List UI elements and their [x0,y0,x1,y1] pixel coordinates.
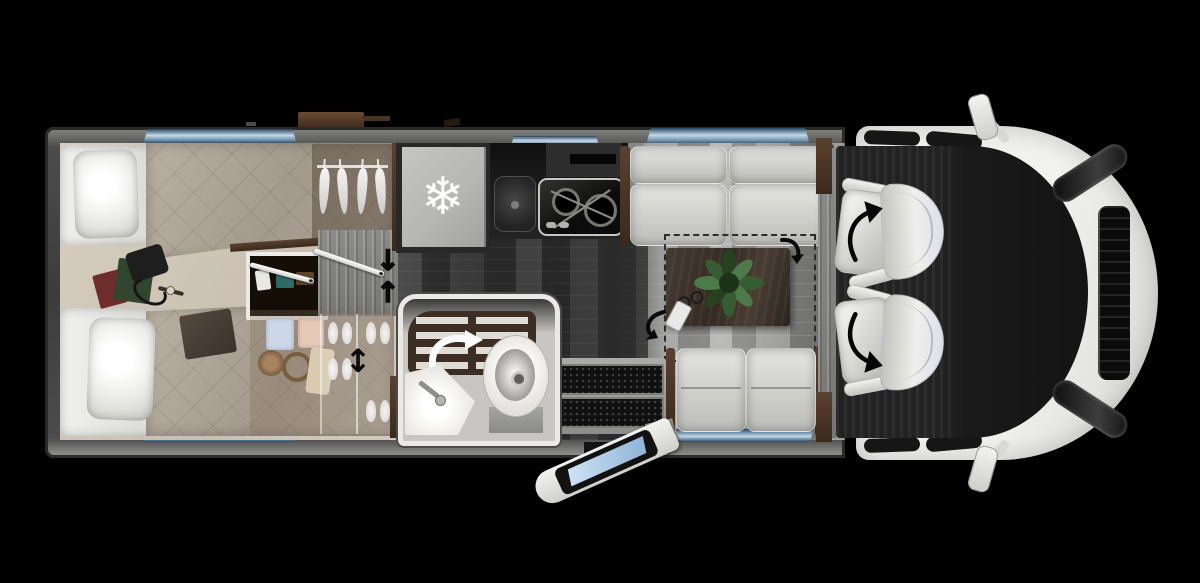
watch-face [166,286,175,295]
window-bedroom-top [143,129,297,144]
shoe [366,400,376,422]
swivel-arrow-icon [840,306,891,376]
toilet [483,335,549,417]
sofa-bottom-seat-right [746,348,816,432]
hob-knob2 [559,222,569,228]
overhead-locker-slot [570,154,616,164]
sofa-top-backrest-left [630,146,727,184]
hanger-icon [356,168,368,214]
step-tread [560,364,664,395]
bed-top-pillow [72,149,139,239]
roof-vent-small [444,118,461,127]
cab-door-window-slit [864,130,920,146]
sofa-top-trim-left [620,146,630,244]
underbed-storage-overlay: ↕ [250,310,394,436]
shower-swivel-arrow [425,329,483,371]
plant [692,248,766,318]
cab-door-window-slit3 [864,437,920,453]
front-grille [1098,206,1130,380]
table-slide-arrow-top [778,236,804,264]
shoe-rack: ↕ [320,314,394,434]
bed-bottom-pillow [86,317,156,421]
bathroom-sink [405,365,475,435]
hanger-icon [336,168,349,215]
shoe [366,322,376,344]
bathroom [398,294,560,446]
shoe [328,358,338,380]
toilet-drain [511,371,527,387]
stored-hat [258,350,284,376]
slide-door-up-icon: ↑ [376,276,400,309]
swivel-seat-driver [833,179,944,284]
cab-cabinet-bottom [816,392,832,442]
hanger-icon [374,168,387,215]
height-adjust-icon: ↕ [344,342,372,380]
hanger-icon [318,168,330,214]
swivel-arrow-icon [840,198,891,268]
stored-shirt-blue [266,318,294,350]
shoe [380,400,390,422]
swivel-seat-passenger [833,289,944,394]
shoe [380,322,390,344]
bed-throw-blanket [179,308,237,360]
snowflake-icon: ❄ [402,147,484,247]
shoe [328,322,338,344]
table-slide-arrow-bottom [642,308,668,340]
overhead-locker [546,143,622,177]
hob-knob [546,222,556,228]
floorplan-canvas: ↕ ↓ ↑ ❄ [0,0,1200,583]
hob-burner [584,194,617,227]
gas-hob [538,178,624,236]
sink-drain [511,201,519,209]
sink-faucet-knob [435,395,446,406]
wardrobe-overlay [312,144,394,242]
roof-marker [246,122,256,126]
sofa-top-backrest-right [729,146,825,184]
kitchen-sink [494,176,536,232]
cab-cabinet-top [816,138,832,194]
fridge: ❄ [402,147,486,247]
shoe [342,322,352,344]
hanger-row [312,144,394,242]
partition-wall-lower [390,376,396,438]
roof-rack-arm [362,116,390,121]
